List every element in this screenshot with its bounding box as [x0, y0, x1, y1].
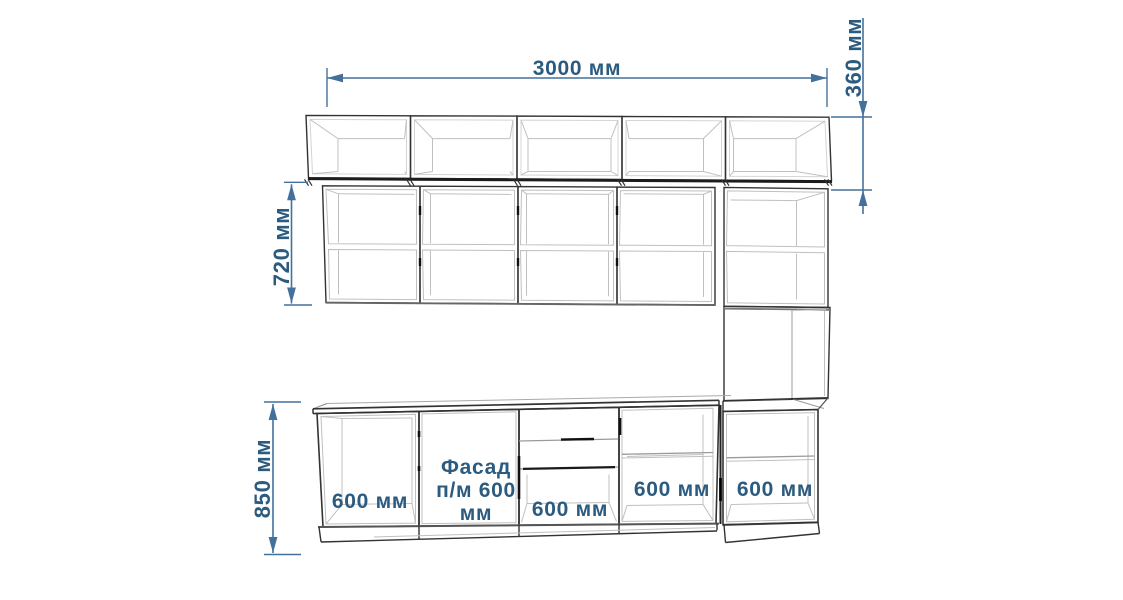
svg-text:600 мм: 600 мм	[634, 478, 710, 501]
svg-text:600 мм: 600 мм	[332, 490, 408, 513]
svg-text:3000 мм: 3000 мм	[533, 57, 622, 80]
svg-text:720 мм: 720 мм	[269, 207, 294, 287]
svg-text:Фасад: Фасад	[441, 456, 511, 479]
svg-text:600 мм: 600 мм	[737, 478, 813, 501]
svg-text:600 мм: 600 мм	[532, 498, 608, 521]
svg-text:п/м 600: п/м 600	[436, 479, 516, 502]
svg-text:360 мм: 360 мм	[841, 18, 866, 98]
svg-text:850 мм: 850 мм	[250, 439, 275, 519]
svg-text:мм: мм	[460, 502, 492, 525]
